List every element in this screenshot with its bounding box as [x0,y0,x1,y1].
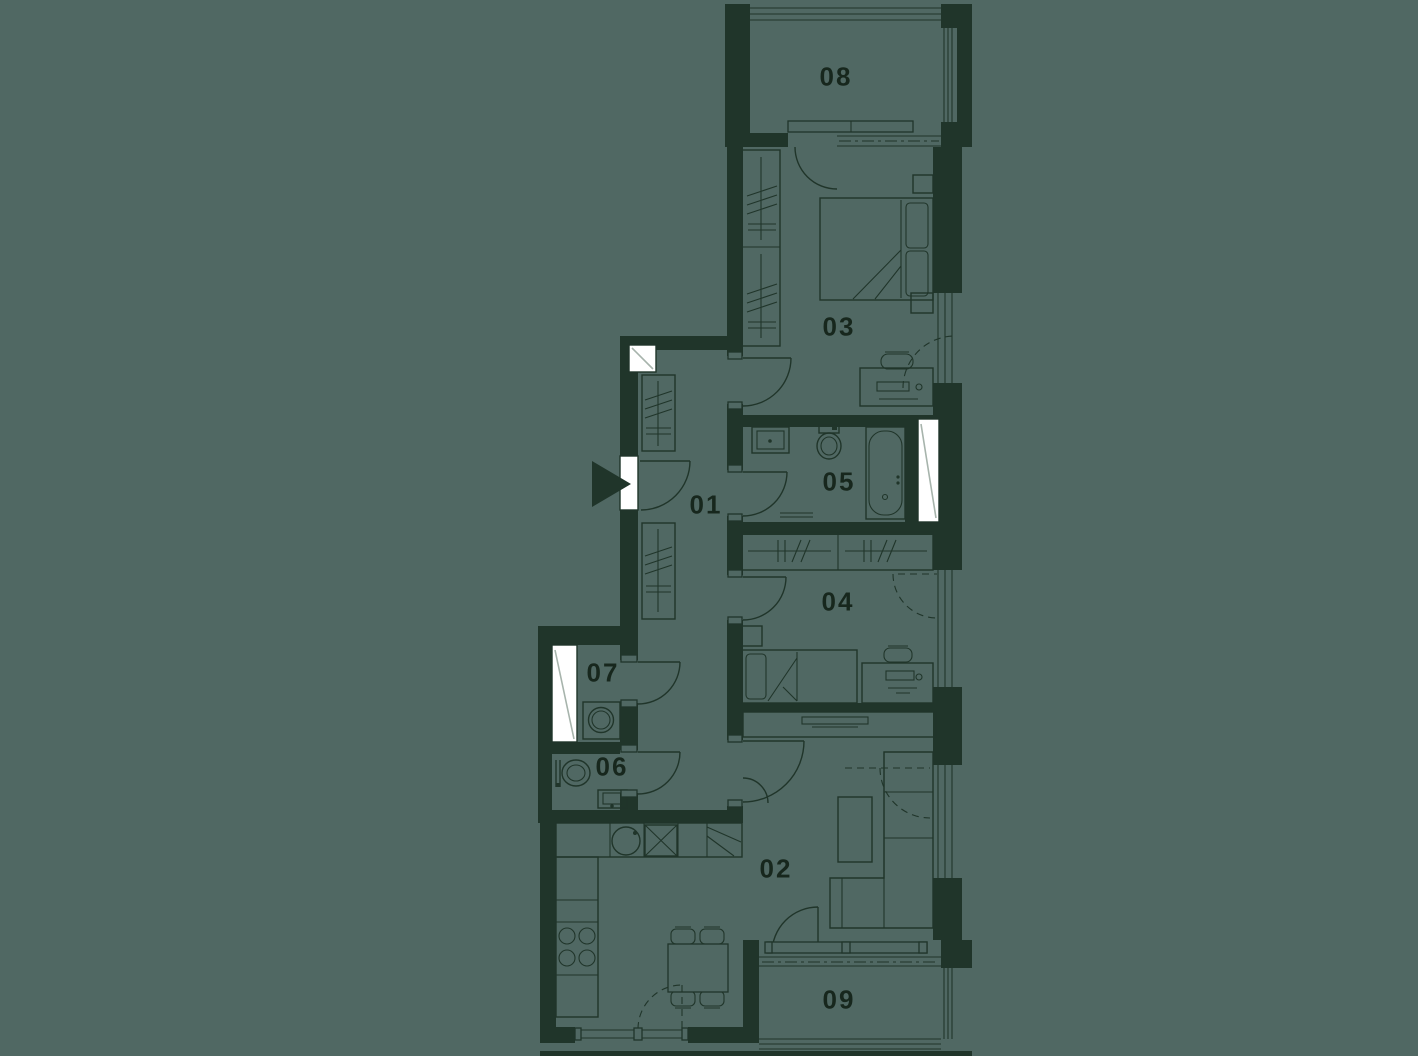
floor-plan-drawing [0,0,1418,1056]
room-05-label: 05 [823,467,856,498]
room-06-label: 06 [596,752,629,783]
room-09-label: 09 [823,985,856,1016]
room-03-label: 03 [823,312,856,343]
floor-plan: 01 02 03 04 05 06 07 08 09 [0,0,1418,1056]
room-07-label: 07 [587,658,620,689]
room-04-label: 04 [822,587,855,618]
sink [752,427,789,453]
room-01-label: 01 [690,490,723,521]
shaft [629,345,656,372]
room-08-label: 08 [820,62,853,93]
shaft [552,645,577,742]
shaft [918,419,939,522]
room-02-label: 02 [760,854,793,885]
